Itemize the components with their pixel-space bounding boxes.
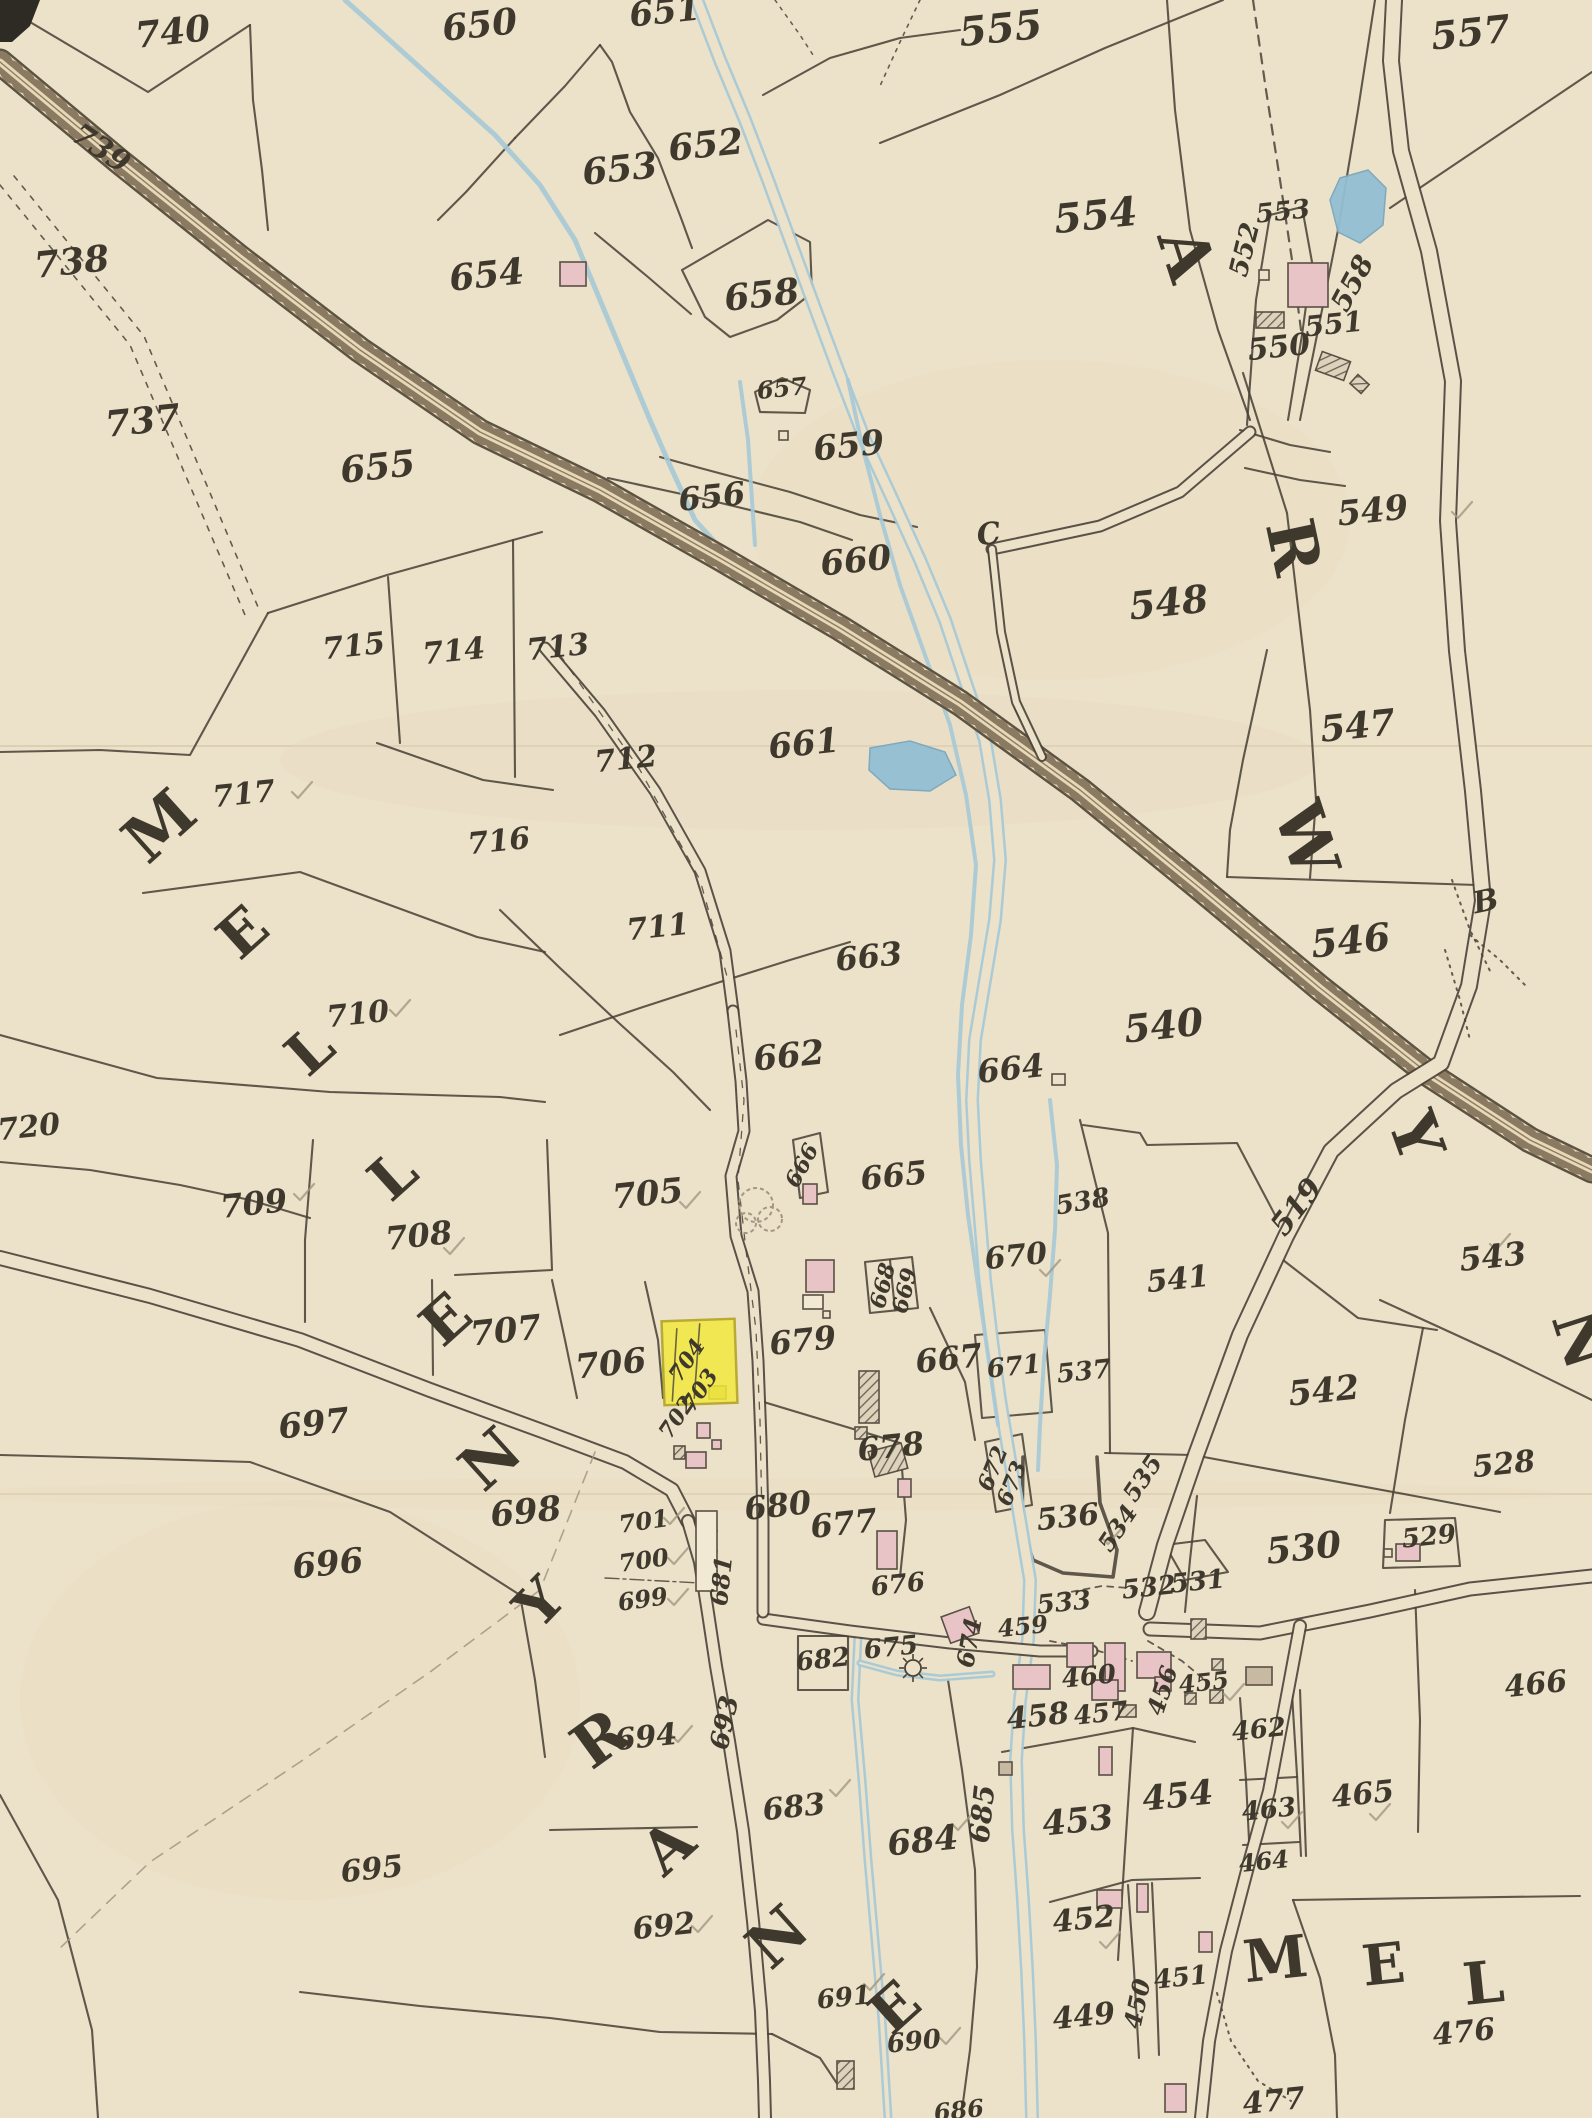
parcel-label-536: 536: [1035, 1497, 1101, 1538]
building: [803, 1295, 823, 1309]
outline-building: [823, 1311, 830, 1318]
parcel-label-476: 476: [1431, 2012, 1497, 2053]
parcel-label-537: 537: [1055, 1354, 1112, 1390]
parcel-label-670: 670: [983, 1236, 1049, 1277]
parcel-label-477: 477: [1241, 2081, 1307, 2118]
parcel-label-459: 459: [996, 1609, 1049, 1643]
parcel-label-660: 660: [818, 537, 893, 584]
outline-building: [1052, 1074, 1065, 1085]
parcel-label-555: 555: [957, 1, 1045, 56]
hatched-building: [1256, 312, 1284, 328]
tithe-map-canvas: 7407397387376506516526536546556586576596…: [0, 0, 1592, 2118]
parcel-label-710: 710: [325, 994, 391, 1035]
parcel-label-661: 661: [766, 720, 841, 767]
parcel-label-686: 686: [932, 2093, 985, 2118]
parcel-label-682: 682: [794, 1642, 851, 1678]
parcel-label-458: 458: [1005, 1696, 1071, 1737]
parcel-label-715: 715: [321, 626, 387, 667]
outline-building: [1384, 1549, 1392, 1557]
parcel-label-554: 554: [1052, 188, 1140, 243]
parcel-label-557: 557: [1429, 5, 1513, 58]
parcel-label-716: 716: [466, 821, 532, 862]
parcel-label-551: 551: [1303, 305, 1365, 344]
parcel-label-464: 464: [1237, 1844, 1290, 1878]
district-letter-E: E: [1359, 1930, 1408, 2000]
parcel-label-740: 740: [133, 7, 212, 57]
parcel-label-697: 697: [276, 1400, 351, 1447]
building: [686, 1452, 706, 1468]
parcel-label-655: 655: [338, 442, 417, 492]
parcel-label-528: 528: [1471, 1444, 1537, 1485]
parcel-label-692: 692: [631, 1906, 697, 1947]
parcel-label-553: 553: [1254, 194, 1311, 230]
parcel-label-658: 658: [722, 270, 801, 320]
outline-building: [779, 431, 788, 440]
parcel-label-714: 714: [421, 631, 487, 672]
reference-letter-C: C: [975, 516, 1004, 554]
building: [697, 1423, 710, 1438]
building: [1288, 263, 1328, 307]
parcel-label-663: 663: [834, 934, 904, 979]
parcel-label-706: 706: [573, 1340, 648, 1387]
parcel-label-457: 457: [1072, 1696, 1129, 1732]
parcel-label-531: 531: [1169, 1564, 1226, 1600]
parcel-label-705: 705: [610, 1170, 685, 1217]
parcel-label-695: 695: [339, 1849, 405, 1890]
parcel-label-548: 548: [1127, 575, 1211, 628]
parcel-label-543: 543: [1458, 1234, 1528, 1279]
building: [1137, 1884, 1148, 1912]
parcel-label-463: 463: [1240, 1792, 1297, 1828]
parcel-label-547: 547: [1318, 701, 1397, 751]
building: [560, 262, 586, 286]
district-letter-L: L: [1460, 1947, 1508, 2019]
parcel-label-657: 657: [755, 371, 808, 405]
parcel-label-675: 675: [862, 1630, 919, 1666]
parcel-label-665: 665: [859, 1153, 929, 1198]
hatched-building: [837, 2061, 854, 2089]
parcel-label-696: 696: [290, 1540, 365, 1587]
parcel-label-454: 454: [1140, 1772, 1215, 1819]
parcel-label-540: 540: [1122, 998, 1206, 1051]
parcel-label-676: 676: [869, 1567, 926, 1603]
hatched-building: [1191, 1619, 1206, 1639]
parcel-label-550: 550: [1246, 327, 1312, 368]
grey-building: [999, 1762, 1012, 1775]
map-page: 7407397387376506516526536546556586576596…: [0, 0, 1592, 2118]
parcel-label-683: 683: [761, 1787, 827, 1828]
parcel-label-709: 709: [219, 1181, 289, 1226]
hatched-building: [859, 1371, 879, 1423]
parcel-label-712: 712: [593, 739, 659, 780]
parcel-label-455: 455: [1177, 1665, 1230, 1699]
parcel-label-662: 662: [751, 1032, 826, 1079]
parcel-label-532: 532: [1120, 1570, 1177, 1606]
parcel-label-667: 667: [914, 1336, 984, 1381]
parcel-label-737: 737: [103, 396, 182, 446]
well-icon: [905, 1660, 921, 1676]
building: [1165, 2084, 1186, 2112]
parcel-label-546: 546: [1309, 913, 1393, 966]
parcel-label-677: 677: [809, 1501, 879, 1546]
parcel-label-549: 549: [1335, 487, 1410, 534]
parcel-label-451: 451: [1152, 1960, 1209, 1996]
outline-building: [1259, 270, 1269, 280]
parcel-label-708: 708: [384, 1213, 454, 1258]
parcel-label-664: 664: [976, 1046, 1046, 1091]
parcel-label-449: 449: [1051, 1996, 1117, 2037]
parcel-label-659: 659: [811, 422, 886, 469]
parcel-label-453: 453: [1040, 1797, 1115, 1844]
parcel-label-656: 656: [677, 474, 747, 519]
parcel-label-681: 681: [704, 1554, 738, 1607]
parcel-label-460: 460: [1060, 1659, 1117, 1695]
parcel-label-711: 711: [625, 907, 691, 948]
building: [898, 1479, 911, 1497]
parcel-label-679: 679: [768, 1318, 838, 1363]
parcel-label-466: 466: [1503, 1664, 1569, 1705]
parcel-label-452: 452: [1051, 1899, 1117, 1940]
parcel-label-465: 465: [1330, 1774, 1396, 1815]
parcel-label-713: 713: [525, 627, 591, 668]
parcel-label-678: 678: [856, 1424, 926, 1469]
hatched-building: [674, 1446, 685, 1459]
building: [1013, 1665, 1050, 1689]
parcel-label-684: 684: [885, 1817, 960, 1864]
parcel-label-652: 652: [666, 120, 745, 170]
building: [712, 1440, 721, 1449]
building: [806, 1260, 834, 1292]
grey-building: [1246, 1667, 1272, 1685]
parcel-label-738: 738: [32, 237, 111, 287]
parcel-label-462: 462: [1230, 1712, 1287, 1748]
parcel-label-650: 650: [440, 0, 519, 50]
parcel-label-542: 542: [1286, 1367, 1361, 1414]
parcel-label-717: 717: [211, 774, 277, 815]
parcel-label-654: 654: [447, 250, 526, 300]
parcel-label-685: 685: [963, 1783, 1002, 1845]
parcel-label-530: 530: [1264, 1523, 1343, 1573]
building: [1199, 1932, 1212, 1952]
parcel-label-680: 680: [743, 1483, 813, 1528]
building: [1099, 1747, 1112, 1775]
parcel-label-653: 653: [580, 144, 659, 194]
parcel-label-541: 541: [1145, 1259, 1211, 1300]
parcel-label-671: 671: [985, 1349, 1042, 1385]
district-letter-M: M: [1240, 1922, 1311, 1996]
parcel-label-529: 529: [1400, 1519, 1457, 1555]
building: [877, 1531, 897, 1569]
parcel-label-720: 720: [0, 1107, 62, 1148]
